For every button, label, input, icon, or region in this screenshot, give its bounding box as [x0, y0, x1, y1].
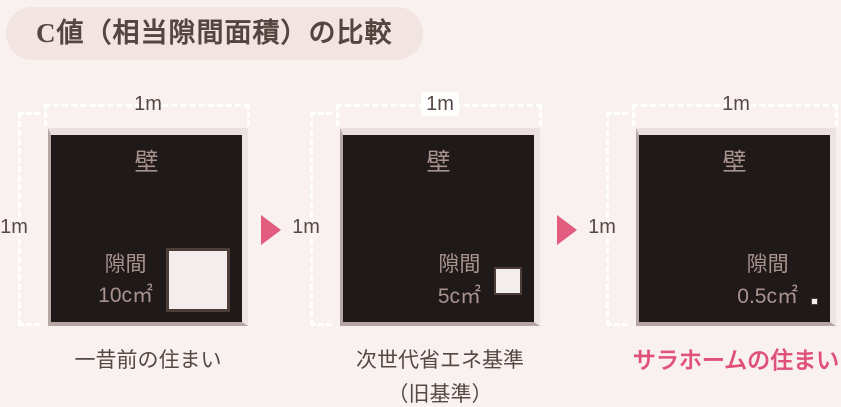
panel-caption: サラホームの住まい: [586, 342, 841, 379]
panel-sala-home: 1m 1m 壁 隙間 0.5c㎡ サラホームの住まい: [586, 88, 841, 407]
dimension-value: 1m: [134, 93, 162, 115]
gap-square: [811, 298, 818, 305]
panel-old-home: 1m 1m 壁 隙間 10c㎡ 一昔前の住まい: [0, 88, 258, 407]
gap-text: 隙間 10c㎡: [98, 249, 153, 312]
left-dimension-label: 1m: [284, 216, 328, 239]
caption-line1: 次世代省エネ基準: [290, 344, 590, 378]
top-dimension-label: 1m: [636, 93, 836, 116]
gap-area: 隙間 0.5c㎡: [737, 249, 818, 312]
gap-text: 隙間 0.5c㎡: [737, 249, 798, 312]
left-dimension-label: 1m: [580, 216, 624, 239]
wall-square: 壁 隙間 5c㎡: [340, 128, 540, 326]
gap-value: 10c㎡: [98, 280, 153, 312]
panel-next-gen-standard: 1m 1m 壁 隙間 5c㎡ 次世代省エネ基準 （旧基準）: [290, 88, 550, 407]
dimension-value: 1m: [421, 92, 459, 116]
panel-caption: 一昔前の住まい: [0, 344, 298, 378]
gap-label: 隙間: [98, 249, 153, 281]
page-title: C値（相当隙間面積）の比較: [6, 7, 423, 60]
arrow-right-icon: [261, 215, 281, 245]
infographic-c-value-comparison: C値（相当隙間面積）の比較 1m 1m 壁 隙間 10c㎡ 一昔前の住まい 1m…: [0, 0, 841, 407]
wall-square: 壁 隙間 0.5c㎡: [636, 128, 836, 326]
wall-label: 壁: [639, 142, 830, 177]
top-dimension-label: 1m: [340, 93, 540, 116]
gap-value: 5c㎡: [438, 281, 481, 313]
gap-text: 隙間 5c㎡: [438, 249, 481, 312]
top-dimension-label: 1m: [48, 93, 248, 116]
caption-line1: 一昔前の住まい: [0, 344, 298, 378]
panel-caption: 次世代省エネ基準 （旧基準）: [290, 344, 590, 407]
wall-label: 壁: [51, 142, 242, 177]
gap-label: 隙間: [438, 249, 481, 281]
gap-value: 0.5c㎡: [737, 281, 798, 313]
wall-label: 壁: [343, 142, 534, 177]
gap-area: 隙間 10c㎡: [98, 248, 230, 312]
gap-area: 隙間 5c㎡: [438, 249, 522, 312]
wall-square: 壁 隙間 10c㎡: [48, 128, 248, 326]
arrow-right-icon: [557, 215, 577, 245]
gap-square: [494, 267, 522, 295]
left-dimension-label: 1m: [0, 216, 36, 239]
caption-line1: サラホームの住まい: [586, 342, 841, 379]
gap-label: 隙間: [737, 249, 798, 281]
caption-line2: （旧基準）: [290, 378, 590, 407]
gap-square: [166, 248, 230, 312]
dimension-value: 1m: [722, 93, 750, 115]
